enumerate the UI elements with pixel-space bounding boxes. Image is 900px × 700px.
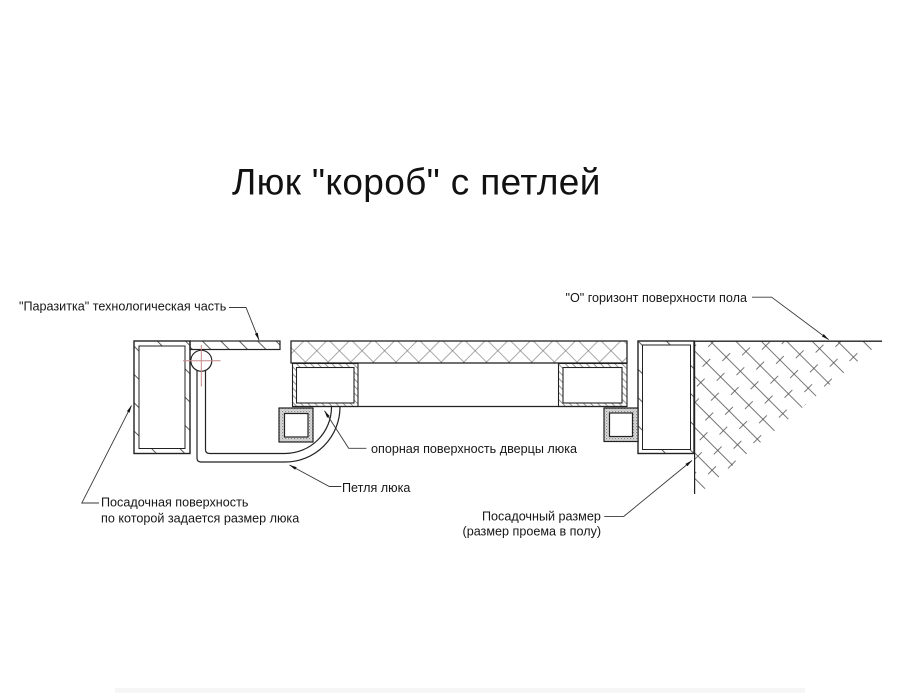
svg-text:Посадочная поверхность: Посадочная поверхность [101,496,249,510]
svg-text:Посадочный размер: Посадочный размер [482,510,601,524]
svg-text:Петля люка: Петля люка [342,481,410,495]
svg-text:Люк "короб" с петлей: Люк "короб" с петлей [232,162,601,203]
svg-text:"О" горизонт поверхности пола: "О" горизонт поверхности пола [566,291,747,305]
svg-text:опорная поверхность дверцы люк: опорная поверхность дверцы люка [371,442,577,456]
svg-text:по которой задается размер люк: по которой задается размер люка [101,512,299,526]
svg-text:(размер проема в полу): (размер проема в полу) [463,525,602,539]
svg-text:"Паразитка" технологическая ча: "Паразитка" технологическая часть [19,300,227,314]
